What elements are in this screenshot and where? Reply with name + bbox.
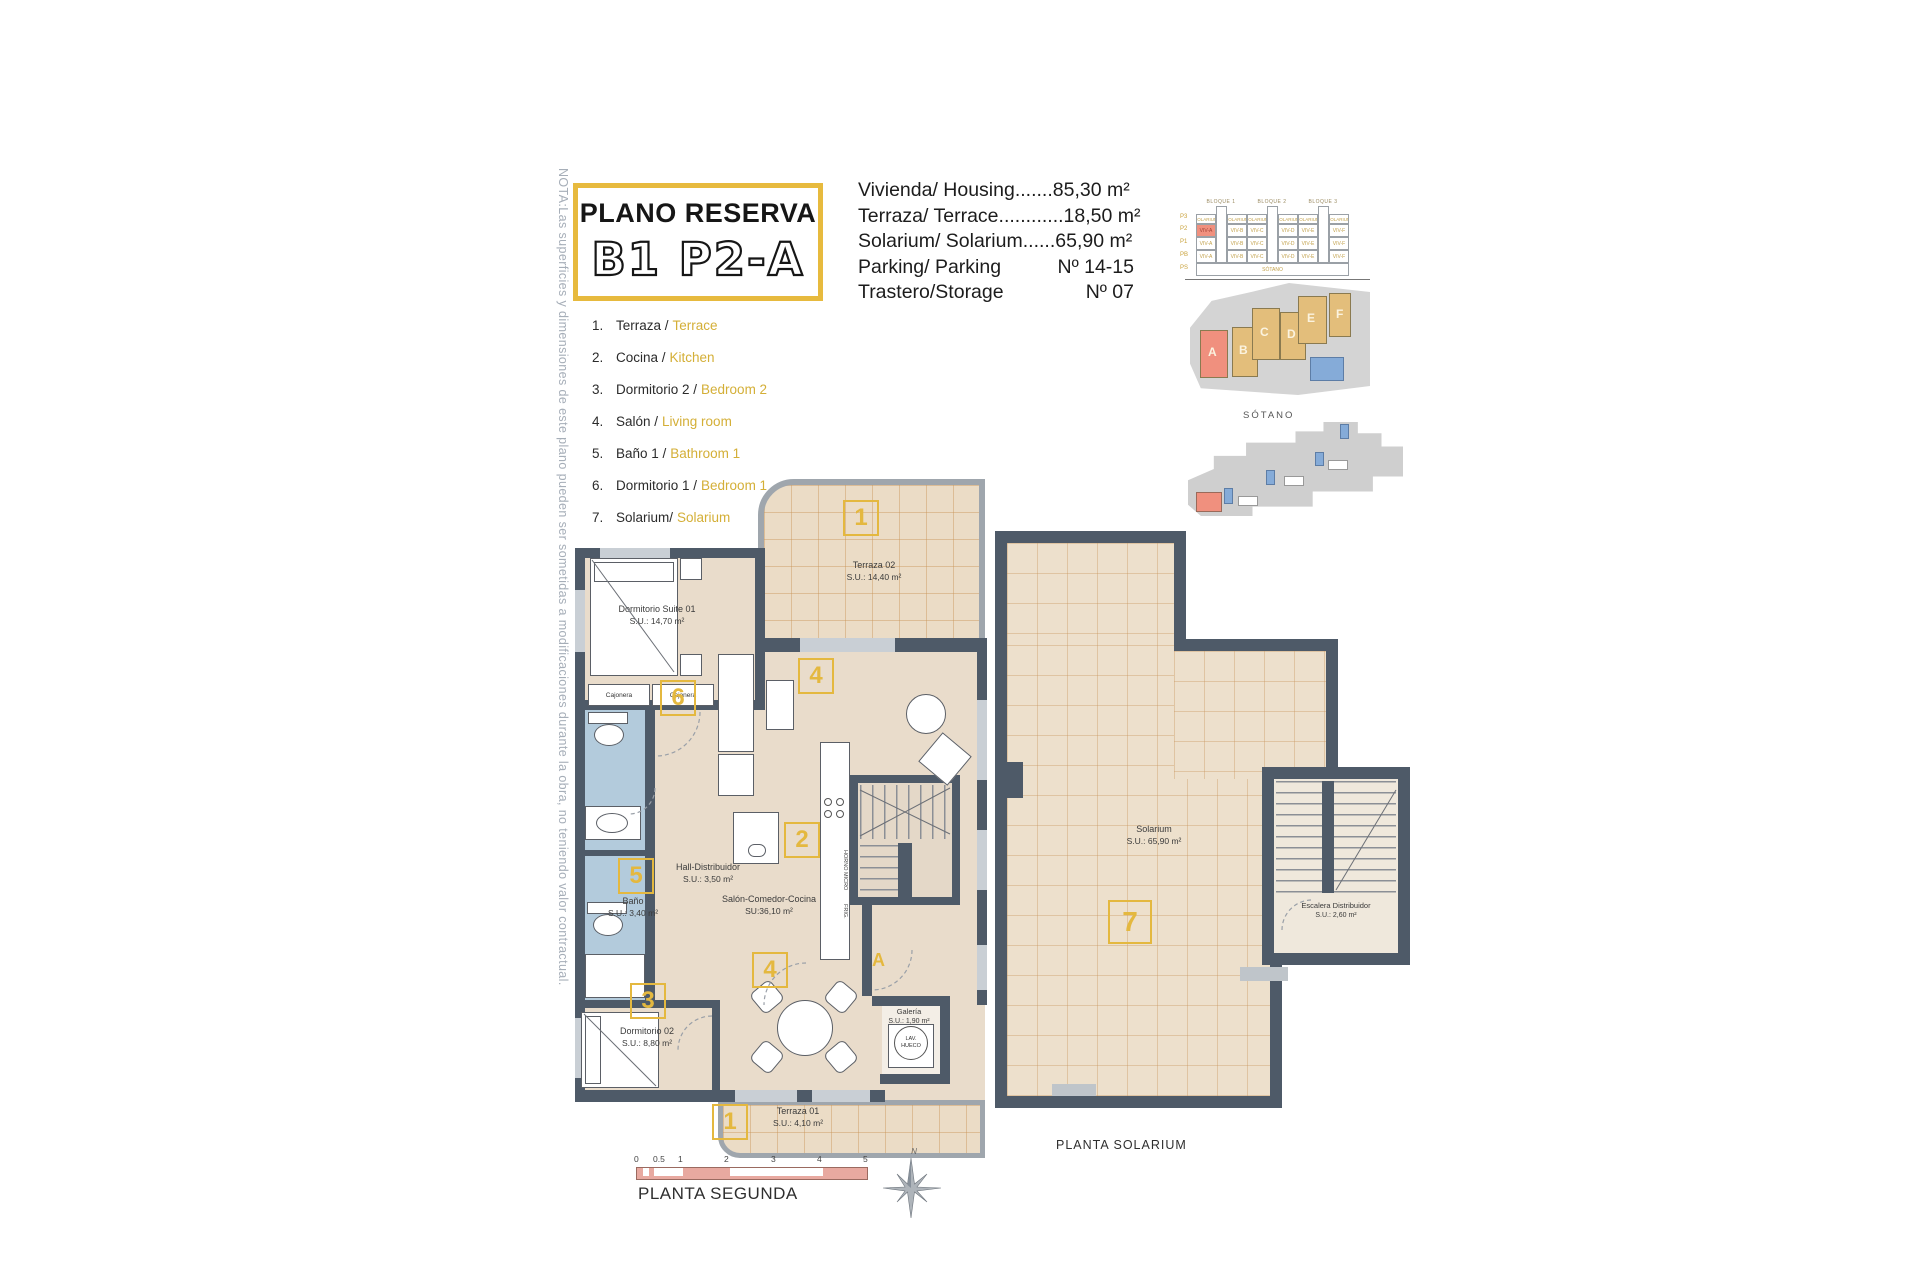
basement-parking-stalls [1284, 476, 1304, 486]
legend-item: 1.Terraza /Terrace [592, 318, 822, 333]
wall-segment [712, 1008, 720, 1090]
nightstand-icon [680, 654, 702, 676]
solarium-staircase: Escalera Distribuidor S.U.: 2,60 m² [1262, 767, 1410, 965]
room-label-suite: Dormitorio Suite 01 S.U.: 14,70 m² [598, 604, 716, 627]
disclaimer-note: NOTA:Las superficies y dimensiones de es… [550, 168, 570, 1073]
step-block [1052, 1084, 1096, 1096]
island-sink-icon [748, 844, 766, 857]
badge-dining: 4 [752, 952, 788, 988]
toilet-icon [594, 724, 624, 746]
staircase [850, 775, 960, 905]
legend-item: 5.Baño 1 /Bathroom 1 [592, 446, 822, 461]
wall-segment [995, 531, 1186, 543]
washer-icon: LAV.HUECO [894, 1026, 928, 1060]
window [575, 590, 585, 652]
basement-title: SÓTANO [1243, 410, 1294, 421]
badge-terraza01: 1 [712, 1104, 748, 1140]
wall-segment [1174, 531, 1186, 651]
dining-table-icon [777, 1000, 833, 1056]
sofa-icon [718, 654, 754, 752]
cajonera-unit: Cajonera [588, 684, 650, 706]
entrance-label: A [872, 950, 885, 971]
site-plan: A B C D E F [1190, 283, 1370, 395]
elevation-tower [1216, 206, 1227, 263]
wall-segment [755, 548, 765, 710]
hob-burner-icon [824, 798, 832, 806]
badge-dorm1: 6 [660, 680, 696, 716]
legend-item: 2.Cocina /Kitchen [592, 350, 822, 365]
basement-parking-stalls [1238, 496, 1258, 506]
room-label-salon: Salón-Comedor-Cocina SU:36,10 m² [710, 894, 828, 917]
stair-treads [1334, 781, 1396, 893]
solarium-floor [1174, 651, 1326, 779]
detail-row: Trastero/StorageNº 07 [858, 280, 1134, 306]
side-table-icon [906, 694, 946, 734]
legend-item: 4.Salón /Living room [592, 414, 822, 429]
hob-burner-icon [824, 810, 832, 818]
nightstand-icon [680, 558, 702, 580]
wall-segment [872, 996, 950, 1006]
sofa-chaise-icon [718, 754, 754, 796]
caption-planta-segunda: PLANTA SEGUNDA [638, 1184, 798, 1204]
plan-code: B1 P2-A [585, 231, 811, 287]
elevation-column-c: SOLARIUM VIV-C VIV-C VIV-C [1247, 214, 1267, 263]
basement-storage-highlighted [1196, 492, 1222, 512]
room-label-dorm02: Dormitorio 02 S.U.: 8,80 m² [598, 1026, 696, 1049]
detail-row: Terraza/ Terrace............18,50 m² [858, 204, 1134, 230]
basement-stair-core [1266, 470, 1275, 485]
stair-core-wall [898, 843, 912, 897]
elevation-column-e: SOLARIUM VIV-E VIV-E VIV-E [1298, 214, 1318, 263]
legend-item: 3.Dormitorio 2 /Bedroom 2 [592, 382, 822, 397]
chimney-block [1007, 762, 1023, 798]
window [977, 830, 987, 890]
site-pool [1310, 357, 1344, 381]
plan-title: PLANO RESERVA [580, 198, 817, 229]
elevation-basement-bar: SÓTANO [1196, 263, 1349, 276]
room-label-escalera: Escalera Distribuidor S.U.: 2,60 m² [1278, 901, 1394, 920]
sliding-door [800, 638, 895, 652]
room-label-terraza01: Terraza 01 S.U.: 4,10 m² [742, 1106, 854, 1129]
detail-row: Solarium/ Solarium......65,90 m² [858, 229, 1134, 255]
window [977, 700, 987, 780]
wall-segment [645, 708, 655, 1003]
room-label-galeria: Galería S.U.: 1,90 m² [874, 1007, 944, 1026]
window [735, 1090, 797, 1102]
room-label-terraza02: Terraza 02 S.U.: 14,40 m² [814, 560, 934, 583]
wall-segment [995, 531, 1007, 1108]
window [812, 1090, 870, 1102]
elevation-column-b: SOLARIUM VIV-B VIV-B VIV-B [1227, 214, 1247, 263]
toilet-tank-icon [588, 712, 628, 724]
room-label-hall: Hall-Distribuidor S.U.: 3,50 m² [660, 862, 756, 885]
stair-treads [860, 845, 898, 897]
svg-text:B1 P2-A: B1 P2-A [591, 233, 804, 286]
svg-text:N: N [911, 1147, 917, 1156]
sink-icon [596, 813, 628, 833]
highlighted-unit-cell: VIV-A [1196, 224, 1216, 237]
bed-pillow-icon [594, 562, 674, 582]
window [600, 548, 670, 558]
elevation-tower [1267, 206, 1278, 263]
elevation-column-a: SOLARIUM VIV-A VIV-A VIV-A [1196, 214, 1216, 263]
coffee-table-icon [766, 680, 794, 730]
wall-segment [1174, 639, 1338, 651]
basement-parking-stalls [1328, 460, 1348, 470]
ground-line [1185, 279, 1370, 280]
wall-segment [995, 1096, 1282, 1108]
stair-treads [860, 785, 952, 839]
stair-treads [1276, 781, 1322, 893]
scale-ticks: 0 0.5 1 2 3 4 5 [636, 1154, 876, 1165]
badge-terraza02: 1 [843, 500, 879, 536]
badge-dorm2: 3 [630, 983, 666, 1019]
caption-planta-solarium: PLANTA SOLARIUM [1056, 1138, 1187, 1152]
wall-segment [579, 850, 645, 856]
plan-sheet: NOTA:Las superficies y dimensiones de es… [0, 0, 1920, 1280]
badge-bano: 5 [618, 858, 654, 894]
elevation-column-d: SOLARIUM VIV-D VIV-D VIV-D [1278, 214, 1298, 263]
stair-core-wall [1322, 781, 1334, 893]
hob-burner-icon [836, 798, 844, 806]
wall-segment [880, 1074, 950, 1084]
title-box: PLANO RESERVA B1 P2-A [573, 183, 823, 301]
detail-row: Parking/ ParkingNº 14-15 [858, 255, 1134, 281]
badge-living: 4 [798, 658, 834, 694]
room-label-bano: Baño S.U.: 3,40 m² [596, 896, 670, 919]
basement-plan: SÓTANO [1188, 404, 1403, 516]
solarium-floor [1007, 543, 1174, 651]
elevation-tower [1318, 206, 1329, 263]
elevation-column-f: SOLARIUM VIV-F VIV-F VIV-F [1329, 214, 1349, 263]
badge-solarium: 7 [1108, 900, 1152, 944]
scale-bar-body [636, 1167, 868, 1180]
entrance-opening [977, 945, 987, 990]
hob-burner-icon [836, 810, 844, 818]
wall-segment [862, 905, 872, 996]
basement-stair-core [1340, 424, 1349, 439]
badge-cocina: 2 [784, 822, 820, 858]
housing-details: Vivienda/ Housing.......85,30 m² Terraza… [858, 178, 1134, 306]
step-block [1240, 967, 1288, 981]
oven-micro-label: HORNO MICRO [822, 848, 848, 892]
room-label-solarium: Solarium S.U.: 65,90 m² [1098, 824, 1210, 847]
detail-row: Vivienda/ Housing.......85,30 m² [858, 178, 1134, 204]
wall-segment [1326, 639, 1338, 779]
basement-stair-core [1315, 452, 1324, 466]
compass-rose: N [878, 1144, 942, 1222]
basement-stair-core [1224, 488, 1233, 504]
